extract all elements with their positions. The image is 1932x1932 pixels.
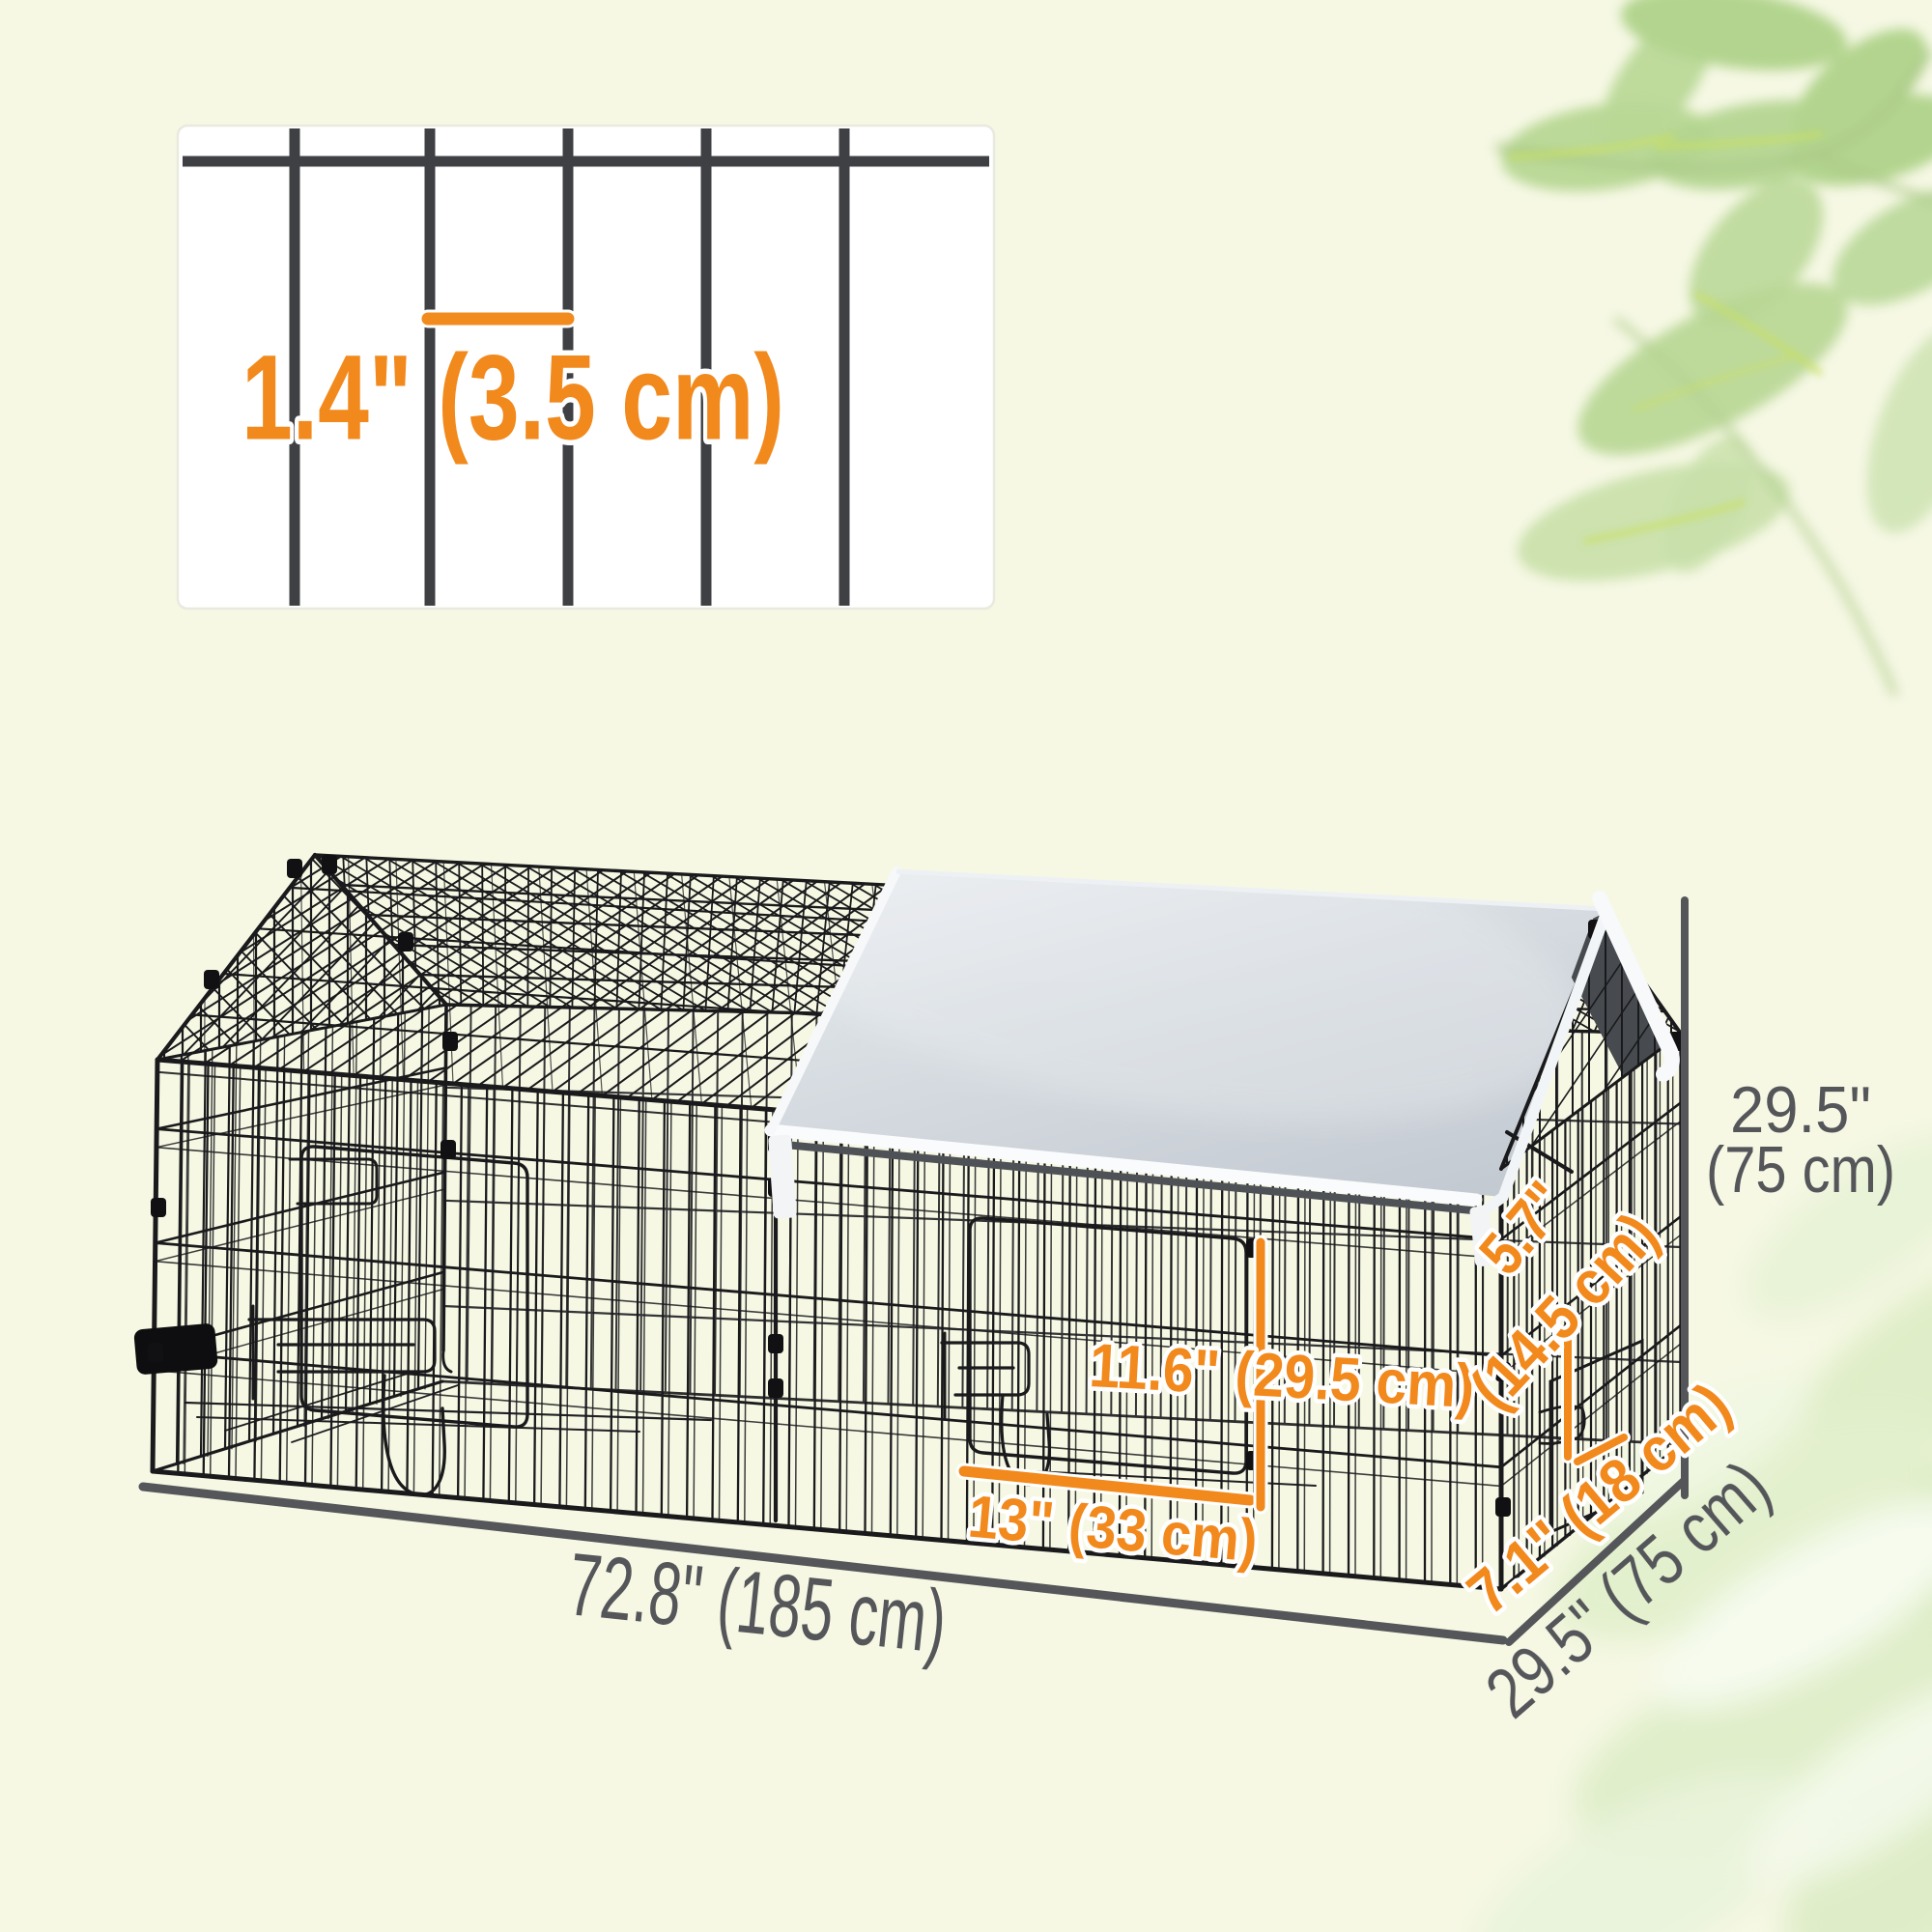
svg-text:1.4" (3.5 cm): 1.4" (3.5 cm) — [241, 331, 784, 466]
svg-text:(75 cm): (75 cm) — [1706, 1133, 1895, 1207]
